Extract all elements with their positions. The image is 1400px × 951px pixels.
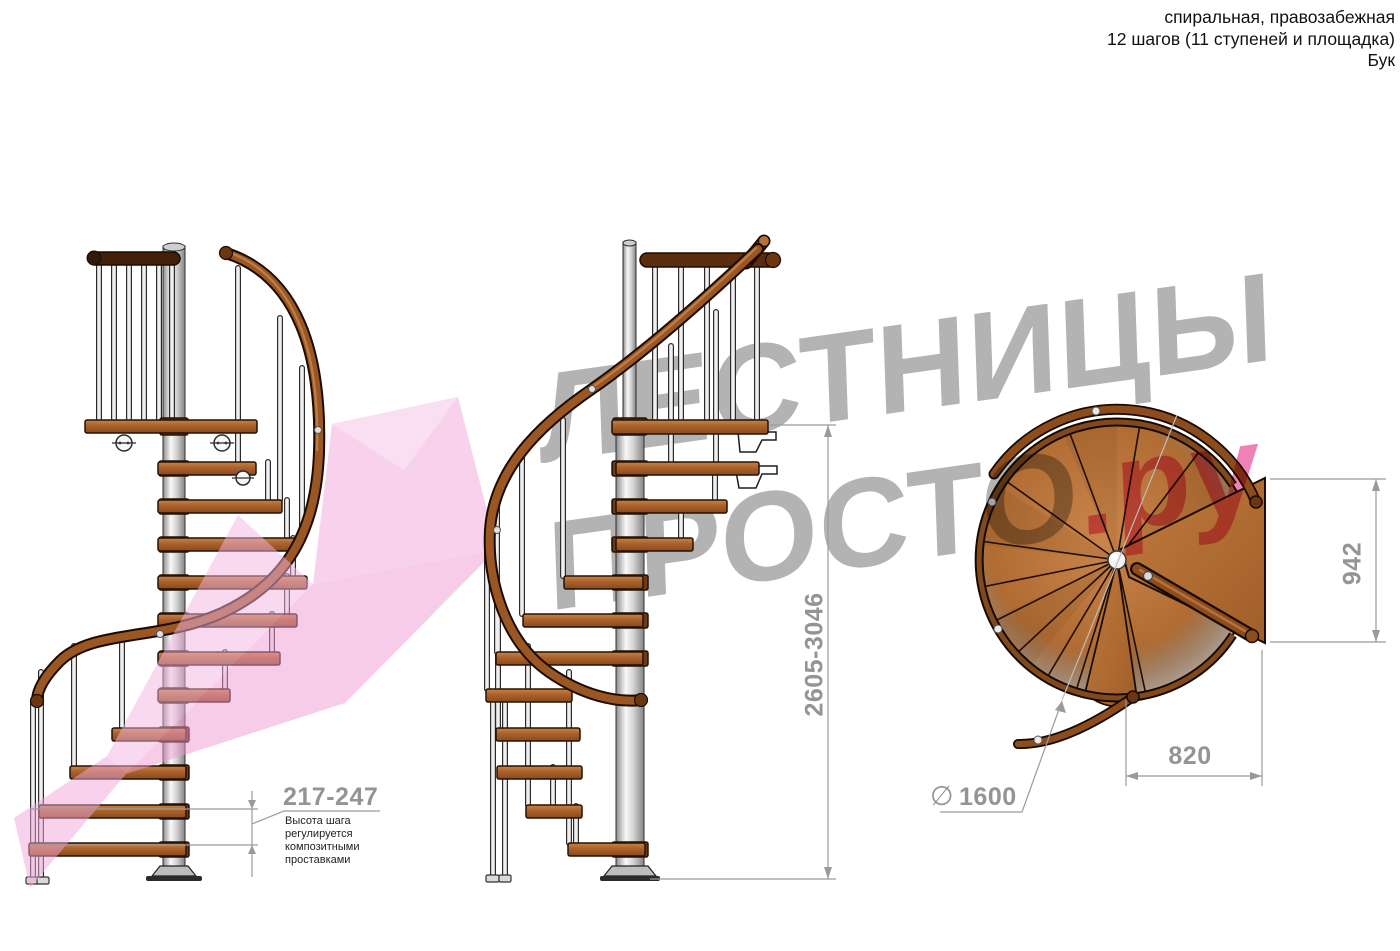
platform-depth-dimension: 942 [1339,494,1368,634]
diameter-icon: ∅ [930,781,954,812]
drawing-title-block: спиральная, правозабежная 12 шагов (11 с… [1107,7,1395,72]
left-balusters [26,266,302,884]
watermark-domain-suffix: .ру [1076,396,1263,563]
platform-width-dimension: 820 [1120,742,1260,771]
material-label: Бук [1107,50,1395,72]
left-column [146,243,202,881]
total-height-dimension: 2605-3046 [801,585,830,725]
left-mount-discs [112,435,254,485]
left-handrail [31,247,322,708]
stair-type-label: спиральная, правозабежная [1107,7,1395,29]
staircase-drawing-page: ЛЕСТНИЦЫ ПРОСТО.ру [0,0,1400,951]
left-treads [29,418,307,857]
diameter-value: 1600 [959,783,1017,812]
step-height-dimension: 217-247 [283,783,378,812]
step-count-label: 12 шагов (11 ступеней и площадка) [1107,29,1395,51]
plan-bottom-tread [1085,560,1137,706]
diameter-dimension: ∅ 1600 [930,781,1017,812]
step-height-note: Высота шага регулируется композитными пр… [285,815,359,867]
